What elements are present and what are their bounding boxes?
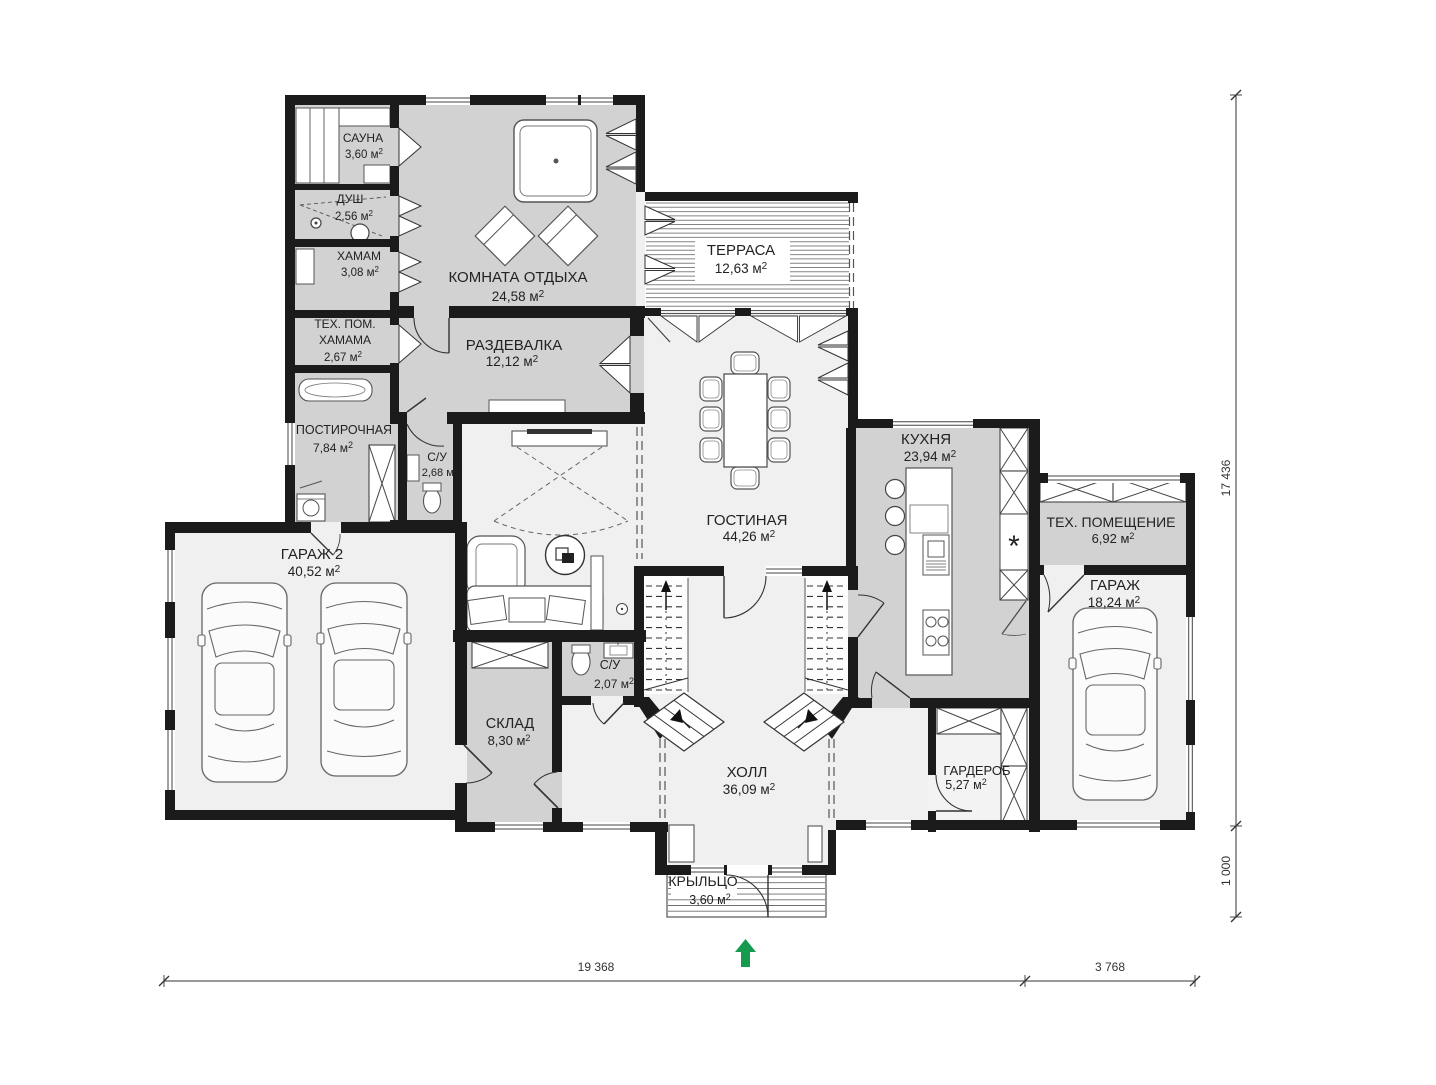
svg-text:КУХНЯ: КУХНЯ (901, 431, 951, 448)
svg-text:ХАМАМА: ХАМАМА (319, 333, 371, 347)
svg-text:ГОСТИНАЯ: ГОСТИНАЯ (707, 512, 788, 529)
svg-text:12,12 м2: 12,12 м2 (486, 354, 539, 369)
svg-text:2,68 м2: 2,68 м2 (422, 465, 459, 479)
svg-text:ДУШ: ДУШ (337, 192, 364, 206)
svg-text:12,63 м2: 12,63 м2 (715, 261, 768, 276)
svg-text:ТЕХ. ПОМ.: ТЕХ. ПОМ. (314, 317, 375, 331)
svg-text:ХАМАМ: ХАМАМ (337, 249, 381, 263)
svg-text:ХОЛЛ: ХОЛЛ (727, 764, 768, 781)
svg-text:РАЗДЕВАЛКА: РАЗДЕВАЛКА (466, 337, 563, 354)
svg-text:2,67 м2: 2,67 м2 (324, 350, 362, 364)
svg-text:С/У: С/У (600, 658, 621, 672)
svg-text:ПОСТИРОЧНАЯ: ПОСТИРОЧНАЯ (296, 423, 392, 437)
svg-text:17 436: 17 436 (1219, 459, 1233, 496)
svg-text:ТЕРРАСА: ТЕРРАСА (707, 242, 775, 259)
svg-text:36,09 м2: 36,09 м2 (723, 782, 776, 797)
svg-text:40,52 м2: 40,52 м2 (288, 564, 341, 579)
svg-text:ГАРДЕРОБ: ГАРДЕРОБ (943, 763, 1010, 778)
svg-text:7,84 м2: 7,84 м2 (313, 440, 353, 455)
svg-text:23,94 м2: 23,94 м2 (904, 449, 957, 464)
svg-text:ГАРАЖ: ГАРАЖ (1090, 577, 1140, 594)
svg-text:САУНА: САУНА (343, 131, 383, 145)
svg-text:5,27 м2: 5,27 м2 (945, 777, 986, 792)
svg-text:ГАРАЖ 2: ГАРАЖ 2 (281, 546, 344, 563)
svg-text:3 768: 3 768 (1095, 960, 1125, 974)
svg-text:*: * (1008, 530, 1020, 563)
svg-text:3,08 м2: 3,08 м2 (341, 265, 379, 279)
svg-text:С/У: С/У (427, 450, 447, 464)
svg-text:3,60 м2: 3,60 м2 (345, 147, 383, 161)
svg-text:КОМНАТА ОТДЫХА: КОМНАТА ОТДЫХА (448, 269, 587, 286)
svg-text:2,07 м2: 2,07 м2 (594, 676, 634, 691)
svg-text:8,30 м2: 8,30 м2 (488, 733, 531, 748)
svg-text:1 000: 1 000 (1219, 856, 1233, 886)
svg-text:6,92 м2: 6,92 м2 (1092, 531, 1135, 546)
svg-text:ТЕХ. ПОМЕЩЕНИЕ: ТЕХ. ПОМЕЩЕНИЕ (1047, 514, 1176, 530)
svg-text:19 368: 19 368 (578, 960, 615, 974)
svg-text:КРЫЛЬЦО: КРЫЛЬЦО (668, 873, 737, 889)
svg-text:18,24 м2: 18,24 м2 (1088, 595, 1141, 610)
svg-text:2,56 м2: 2,56 м2 (335, 209, 373, 223)
svg-text:24,58 м2: 24,58 м2 (492, 289, 545, 304)
svg-text:3,60 м2: 3,60 м2 (689, 892, 730, 907)
svg-text:СКЛАД: СКЛАД (486, 716, 535, 732)
svg-text:44,26 м2: 44,26 м2 (723, 529, 776, 544)
